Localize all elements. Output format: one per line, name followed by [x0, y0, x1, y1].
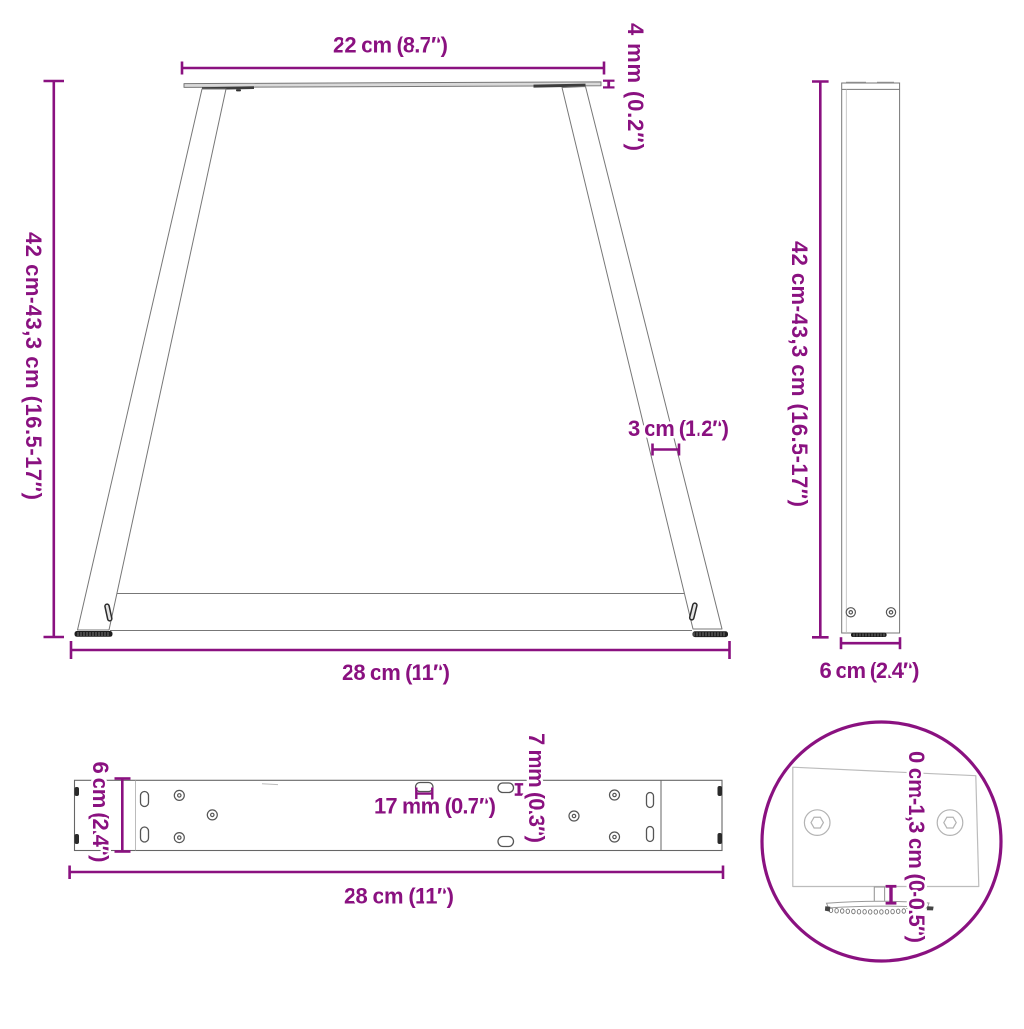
svg-text:7 mm (0.3″): 7 mm (0.3″)	[524, 733, 549, 843]
svg-text:6 cm (2.4″): 6 cm (2.4″)	[88, 762, 113, 863]
svg-text:3 cm (1.2″): 3 cm (1.2″)	[628, 416, 729, 441]
svg-text:28 cm (11″): 28 cm (11″)	[342, 660, 450, 685]
svg-text:4 mm (0.2″): 4 mm (0.2″)	[623, 23, 648, 151]
svg-text:28 cm (11″): 28 cm (11″)	[344, 884, 454, 909]
svg-text:42 cm-43,3 cm (16.5-17″): 42 cm-43,3 cm (16.5-17″)	[21, 232, 46, 500]
svg-text:6 cm (2.4″): 6 cm (2.4″)	[820, 658, 920, 683]
svg-text:42 cm-43,3 cm (16.5-17″): 42 cm-43,3 cm (16.5-17″)	[787, 241, 812, 507]
svg-text:22 cm (8.7″): 22 cm (8.7″)	[333, 32, 448, 57]
svg-text:17 mm (0.7″): 17 mm (0.7″)	[374, 794, 496, 819]
svg-text:0 cm-1,3 cm (0-0.5″): 0 cm-1,3 cm (0-0.5″)	[904, 751, 929, 943]
